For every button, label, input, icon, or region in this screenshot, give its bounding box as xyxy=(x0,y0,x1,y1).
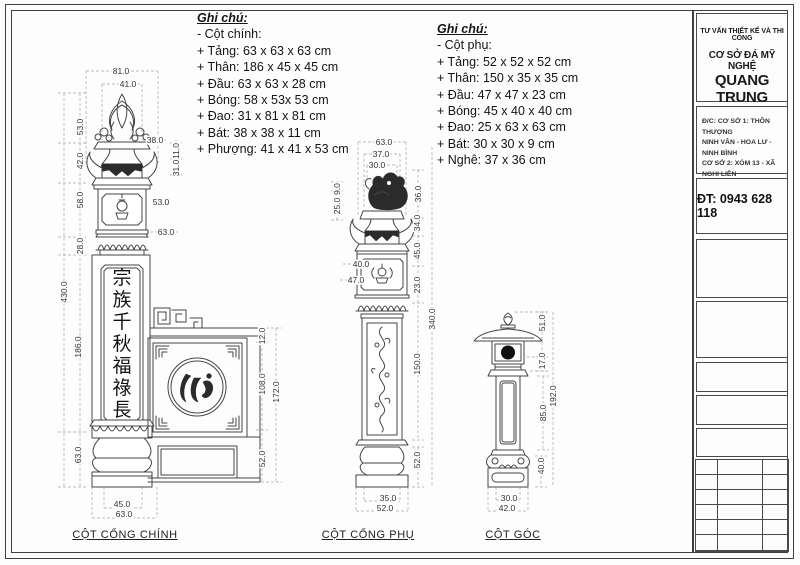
notes-main-subtitle: - Cột chính: xyxy=(197,26,349,42)
notes-secondary-column: Ghi chú: - Cột phụ: + Tảng: 52 x 52 x 52… xyxy=(437,21,578,169)
note-item: + Nghê: 37 x 36 cm xyxy=(437,152,578,168)
svg-text:宗: 宗 xyxy=(112,267,131,289)
title-block-empty-box xyxy=(696,362,788,392)
title-block-divider xyxy=(692,10,694,552)
notes-secondary-subtitle: - Cột phụ: xyxy=(437,37,578,53)
note-item: + Bóng: 45 x 40 x 40 cm xyxy=(437,103,578,119)
table-cell xyxy=(718,475,763,490)
inscription-text: 宗 族 千 秋 福 祿 長 xyxy=(112,267,131,421)
notes-secondary-title: Ghi chú: xyxy=(437,21,578,37)
table-cell xyxy=(763,460,788,475)
table-cell xyxy=(696,475,718,490)
table-cell xyxy=(696,490,718,505)
table-cell xyxy=(696,505,718,520)
caption-secondary-column: CỘT CỔNG PHỤ xyxy=(322,529,415,541)
address-line: NINH VÂN - HOA LƯ - NINH BÌNH xyxy=(702,138,783,159)
title-block-address: Đ/C: CƠ SỞ 1: THÔN THƯỢNGNINH VÂN - HOA … xyxy=(696,106,788,174)
title-block-empty-box xyxy=(696,395,788,425)
note-item: + Thân: 150 x 35 x 35 cm xyxy=(437,70,578,86)
notes-main-column: Ghi chú: - Cột chính: + Tảng: 63 x 63 x … xyxy=(197,10,349,158)
svg-text:長: 長 xyxy=(112,399,131,421)
note-item: + Đao: 31 x 81 x 81 cm xyxy=(197,108,349,124)
svg-text:祿: 祿 xyxy=(112,377,131,399)
table-cell xyxy=(763,520,788,535)
company-type: CƠ SỞ ĐÁ MỸ NGHỆ xyxy=(697,50,787,72)
technical-drawing-sheet: 宗 族 千 秋 福 祿 長 xyxy=(0,0,800,565)
table-cell xyxy=(718,520,763,535)
title-block-empty-box xyxy=(696,239,788,298)
note-item: + Phượng: 41 x 41 x 53 cm xyxy=(197,141,349,157)
address-line: CƠ SỞ 2: XÓM 13 - XÃ NGHI LIÊN xyxy=(702,159,783,180)
note-item: + Đầu: 47 x 47 x 23 cm xyxy=(437,87,578,103)
corner-column-drawing xyxy=(455,305,600,540)
caption-main-column: CỘT CỔNG CHÍNH xyxy=(72,529,177,541)
note-item: + Tảng: 52 x 52 x 52 cm xyxy=(437,54,578,70)
table-cell xyxy=(763,490,788,505)
title-block-revision-table xyxy=(695,459,789,552)
svg-text:族: 族 xyxy=(112,289,131,311)
caption-corner-column: CỘT GÓC xyxy=(485,529,540,541)
table-cell xyxy=(718,505,763,520)
note-item: + Tảng: 63 x 63 x 63 cm xyxy=(197,43,349,59)
note-item: + Bát: 38 x 38 x 11 cm xyxy=(197,125,349,141)
table-cell xyxy=(763,505,788,520)
title-block-empty-box xyxy=(696,428,788,457)
title-block-phone: ĐT: 0943 628 118 xyxy=(696,178,788,234)
title-block-company: TƯ VẤN THIẾT KẾ VÀ THI CÔNG CƠ SỞ ĐÁ MỸ … xyxy=(696,13,788,102)
company-name: QUANG TRUNG xyxy=(697,72,787,106)
calligraphy-emblem xyxy=(180,374,212,402)
note-item: + Bát: 30 x 30 x 9 cm xyxy=(437,136,578,152)
note-item: + Đao: 25 x 63 x 63 cm xyxy=(437,119,578,135)
table-cell xyxy=(718,460,763,475)
secondary-gate-column-drawing xyxy=(325,135,440,520)
table-cell xyxy=(763,475,788,490)
phone-number: ĐT: 0943 628 118 xyxy=(697,192,787,220)
address-line: Đ/C: CƠ SỞ 1: THÔN THƯỢNG xyxy=(702,117,783,138)
company-tagline: TƯ VẤN THIẾT KẾ VÀ THI CÔNG xyxy=(697,28,787,42)
note-item: + Bóng: 58 x 53x 53 cm xyxy=(197,92,349,108)
table-cell xyxy=(696,520,718,535)
table-cell xyxy=(696,460,718,475)
table-cell xyxy=(763,535,788,550)
table-cell xyxy=(718,490,763,505)
note-item: + Thân: 186 x 45 x 45 cm xyxy=(197,59,349,75)
table-cell xyxy=(718,535,763,550)
table-cell xyxy=(696,535,718,550)
title-block-empty-box xyxy=(696,301,788,358)
svg-text:千: 千 xyxy=(112,311,131,333)
notes-main-title: Ghi chú: xyxy=(197,10,349,26)
svg-text:秋: 秋 xyxy=(112,333,131,355)
svg-text:福: 福 xyxy=(112,355,131,377)
note-item: + Đầu: 63 x 63 x 28 cm xyxy=(197,76,349,92)
